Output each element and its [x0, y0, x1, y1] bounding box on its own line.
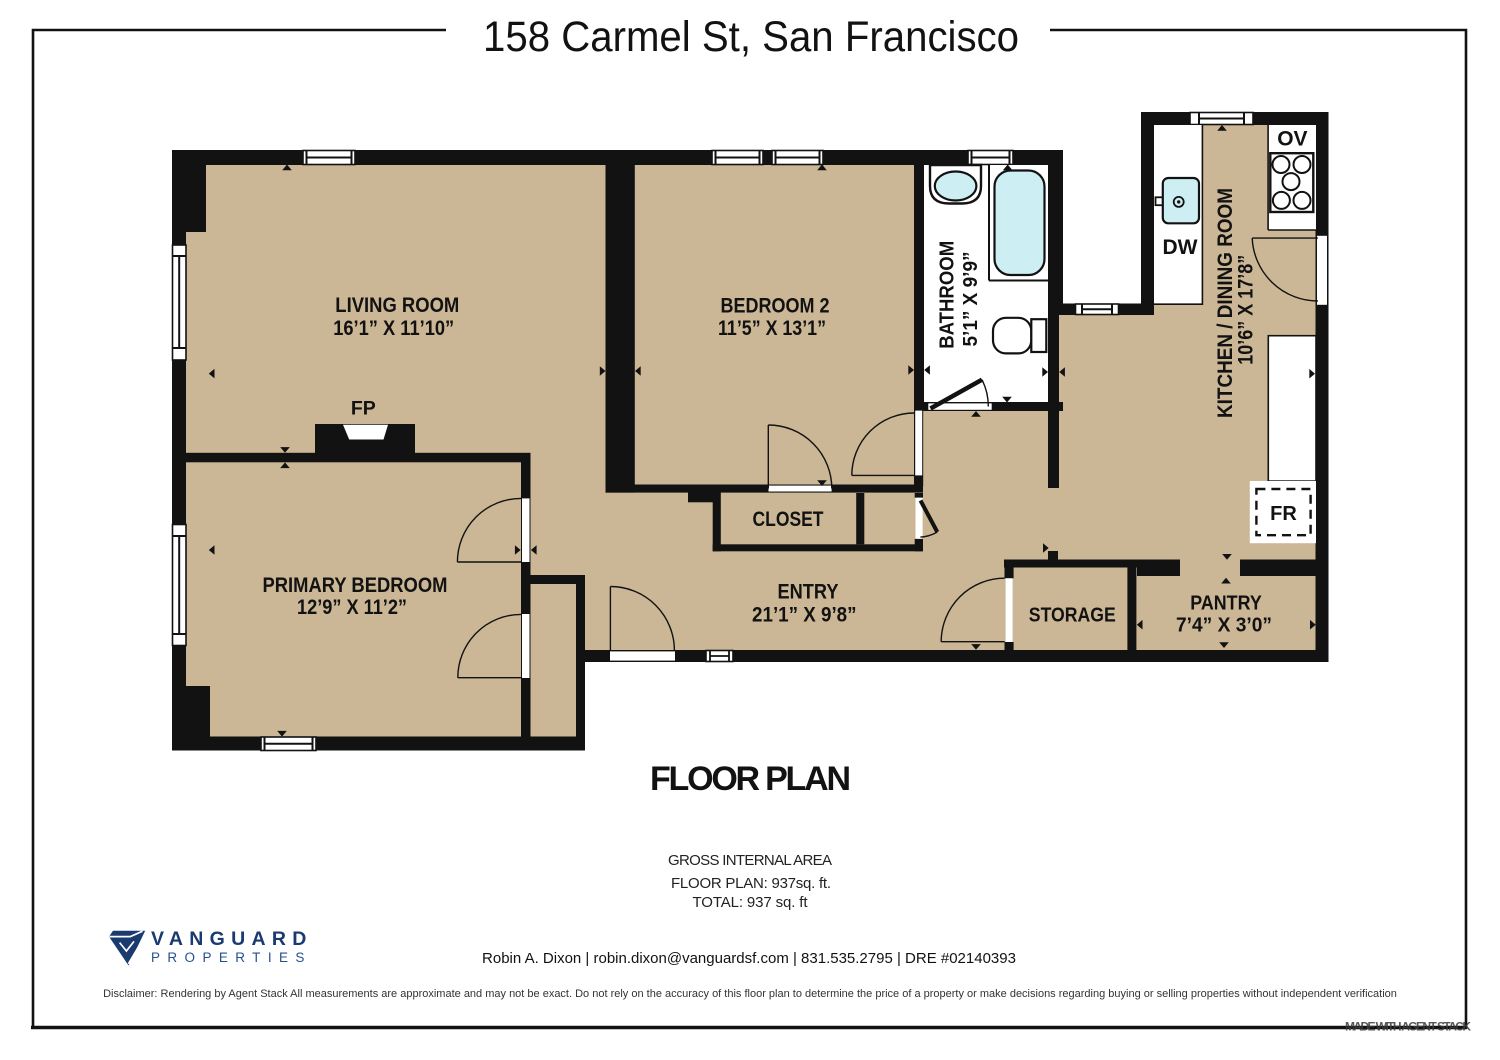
svg-text:16’1” X 11’10”: 16’1” X 11’10”: [333, 316, 454, 340]
svg-text:Disclaimer: Rendering by Agent: Disclaimer: Rendering by Agent Stack All…: [103, 988, 1397, 1000]
svg-text:GROSS INTERNAL AREA: GROSS INTERNAL AREA: [668, 852, 832, 869]
svg-text:158 Carmel St, San Francisco: 158 Carmel St, San Francisco: [483, 13, 1019, 61]
svg-text:Robin A. Dixon | robin.dixon@v: Robin A. Dixon | robin.dixon@vanguardsf.…: [482, 950, 1016, 967]
svg-text:FR: FR: [1270, 503, 1297, 525]
svg-text:7’4” X 3’0”: 7’4” X 3’0”: [1176, 614, 1272, 637]
svg-text:PROPERTIES: PROPERTIES: [151, 950, 312, 965]
svg-text:PRIMARY BEDROOM: PRIMARY BEDROOM: [263, 574, 448, 597]
svg-text:5’1” X 9’9”: 5’1” X 9’9”: [959, 252, 982, 347]
svg-text:CLOSET: CLOSET: [753, 508, 824, 531]
svg-text:BATHROOM: BATHROOM: [936, 241, 959, 349]
svg-text:11’5” X 13’1”: 11’5” X 13’1”: [718, 316, 826, 340]
svg-text:TOTAL: 937 sq. ft: TOTAL: 937 sq. ft: [693, 894, 809, 911]
svg-text:OV: OV: [1277, 128, 1307, 151]
svg-text:PANTRY: PANTRY: [1190, 592, 1262, 615]
svg-text:12’9” X 11’2”: 12’9” X 11’2”: [297, 596, 407, 619]
svg-text:LIVING ROOM: LIVING ROOM: [335, 293, 459, 317]
svg-text:FLOOR PLAN: 937sq. ft.: FLOOR PLAN: 937sq. ft.: [671, 875, 831, 892]
svg-text:BEDROOM 2: BEDROOM 2: [721, 294, 830, 318]
svg-text:VANGUARD: VANGUARD: [151, 928, 313, 950]
svg-text:21’1” X 9’8”: 21’1” X 9’8”: [752, 604, 857, 627]
svg-text:FP: FP: [351, 397, 376, 419]
svg-text:FLOOR PLAN: FLOOR PLAN: [650, 760, 851, 798]
svg-text:10’6” X 17’8”: 10’6” X 17’8”: [1235, 255, 1258, 365]
svg-text:DW: DW: [1163, 236, 1198, 259]
svg-text:ENTRY: ENTRY: [778, 581, 839, 604]
svg-text:STORAGE: STORAGE: [1029, 604, 1116, 626]
svg-text:MADE WITH AGENT STACK: MADE WITH AGENT STACK: [1345, 1020, 1471, 1034]
